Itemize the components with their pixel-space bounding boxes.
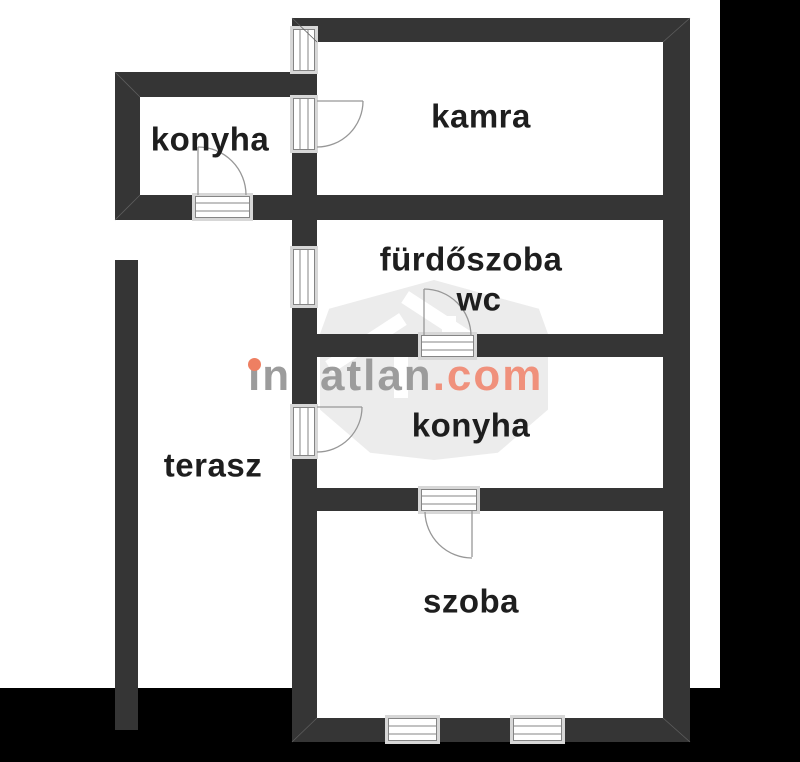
room-label-furdoszoba: fürdőszoba	[380, 243, 563, 276]
miter-bottom-right	[663, 718, 690, 742]
room-label-szoba: szoba	[423, 585, 519, 618]
door-swing-layer	[0, 0, 800, 762]
door-arc-szoba	[425, 512, 472, 558]
miter-annex-bottom-left	[115, 195, 140, 220]
door-arc-annex-kamra	[317, 101, 363, 147]
miter-bottom-left	[292, 718, 317, 742]
room-label-wc: wc	[456, 283, 501, 316]
room-label-terasz: terasz	[164, 449, 262, 482]
miter-top-right	[663, 18, 690, 42]
room-label-kamra: kamra	[431, 100, 531, 133]
room-label-konyha: konyha	[412, 409, 531, 442]
floor-plan-canvas: ıngatlan.com konyha kamra	[0, 0, 800, 762]
miter-annex-top-left	[115, 72, 140, 97]
miter-top-left	[292, 18, 317, 42]
door-arc-terasz-konyha	[317, 407, 362, 452]
room-label-konyha-annex: konyha	[151, 123, 270, 156]
